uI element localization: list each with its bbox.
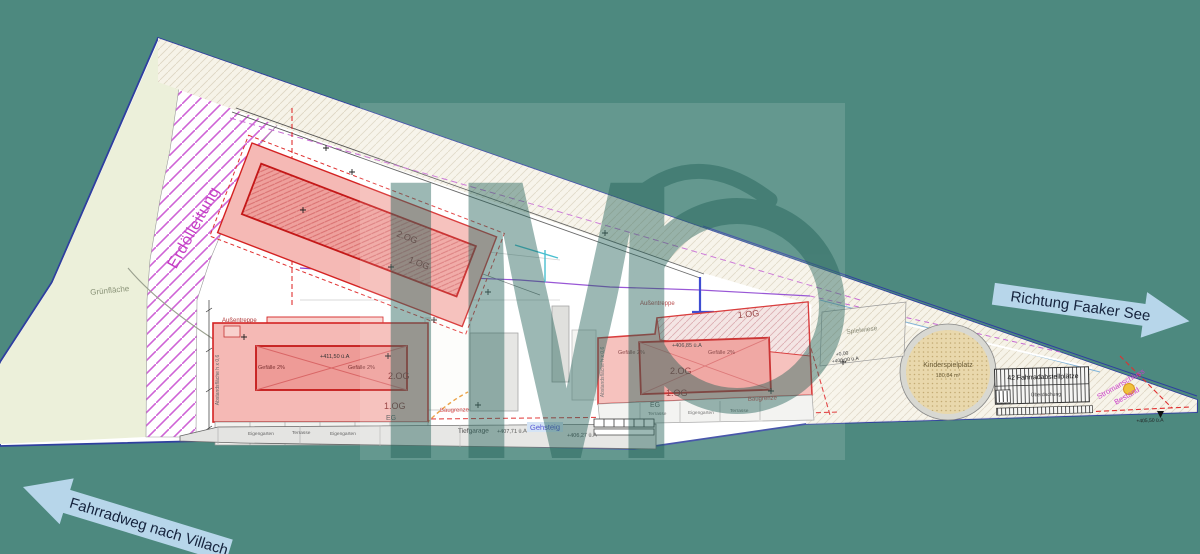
- playground: [900, 324, 996, 420]
- tip-elevation: +405,50 ü.A: [1136, 418, 1164, 425]
- building-c-slope-1: Gefälle 2%: [618, 350, 645, 356]
- watermark-swoosh: [640, 171, 770, 200]
- garage-label: Tiefgarage: [458, 427, 489, 435]
- arrow-villach: Fahrradweg nach Villach: [16, 465, 237, 554]
- garden-cell-2: Eigengarten: [330, 431, 356, 437]
- building-b-floor0: EG: [386, 415, 396, 422]
- site-plan-drawing: Erdölleitung Grünfläche 2.OG 1.OG Außent…: [0, 0, 1200, 554]
- baugrenze-label-1: Baugrenze: [440, 407, 470, 414]
- sidewalk-label: Gehsteig: [530, 422, 560, 432]
- garden-cell-1: Eigengarten: [248, 431, 274, 437]
- garage-elevation: +407,71 ü.A: [497, 428, 527, 435]
- building-b-stairs-label: Außentreppe: [222, 318, 257, 324]
- building-b-floor2: 2.OG: [388, 371, 410, 381]
- building-c-slope-2: Gefälle 2%: [708, 350, 735, 356]
- terrace-cell-2: Terrasse: [648, 411, 667, 417]
- playground-area: 180,84 m²: [936, 373, 961, 379]
- playground-label: Kinderspielplatz: [923, 362, 973, 369]
- building-b-slope-1: Gefälle 2%: [258, 365, 285, 371]
- street-elevation: +406,27 ü.A: [567, 432, 597, 439]
- building-b-setback-label: Abstandsfläche h x 0,6: [215, 354, 221, 405]
- meadow-area: [820, 302, 906, 366]
- building-b-slope-2: Gefälle 2%: [348, 365, 375, 371]
- arrow-left-label: Fahrradweg nach Villach: [67, 495, 230, 554]
- building-c-floor1-upper: 1.OG: [737, 308, 759, 320]
- terrace-cell-1: Terrasse: [292, 430, 311, 436]
- building-c-stairs-label: Außentreppe: [640, 301, 675, 307]
- building-c-setback-label: Abstandsfläche h x 0,6: [600, 346, 606, 397]
- building-c-floor1-lower: 1.OG: [666, 388, 688, 398]
- terrace-cell-3: Terrasse: [730, 408, 749, 414]
- garden-cell-3: Eigengarten: [688, 410, 714, 416]
- building-c-elevation: +406,85 ü.A: [672, 343, 702, 349]
- arrow-faaker-see: Richtung Faaker See: [990, 271, 1192, 344]
- building-b-elevation: +411,50 ü.A: [320, 354, 350, 360]
- building-b-floor1: 1.OG: [384, 401, 406, 411]
- site-plan-canvas: Erdölleitung Grünfläche 2.OG 1.OG Außent…: [0, 0, 1200, 554]
- building-c-floor0: EG: [650, 402, 660, 409]
- bike-parking-sub: Überdachung: [1031, 391, 1061, 399]
- arrow-right-label: Richtung Faaker See: [1009, 288, 1151, 324]
- building-c-floor2: 2.OG: [670, 366, 692, 376]
